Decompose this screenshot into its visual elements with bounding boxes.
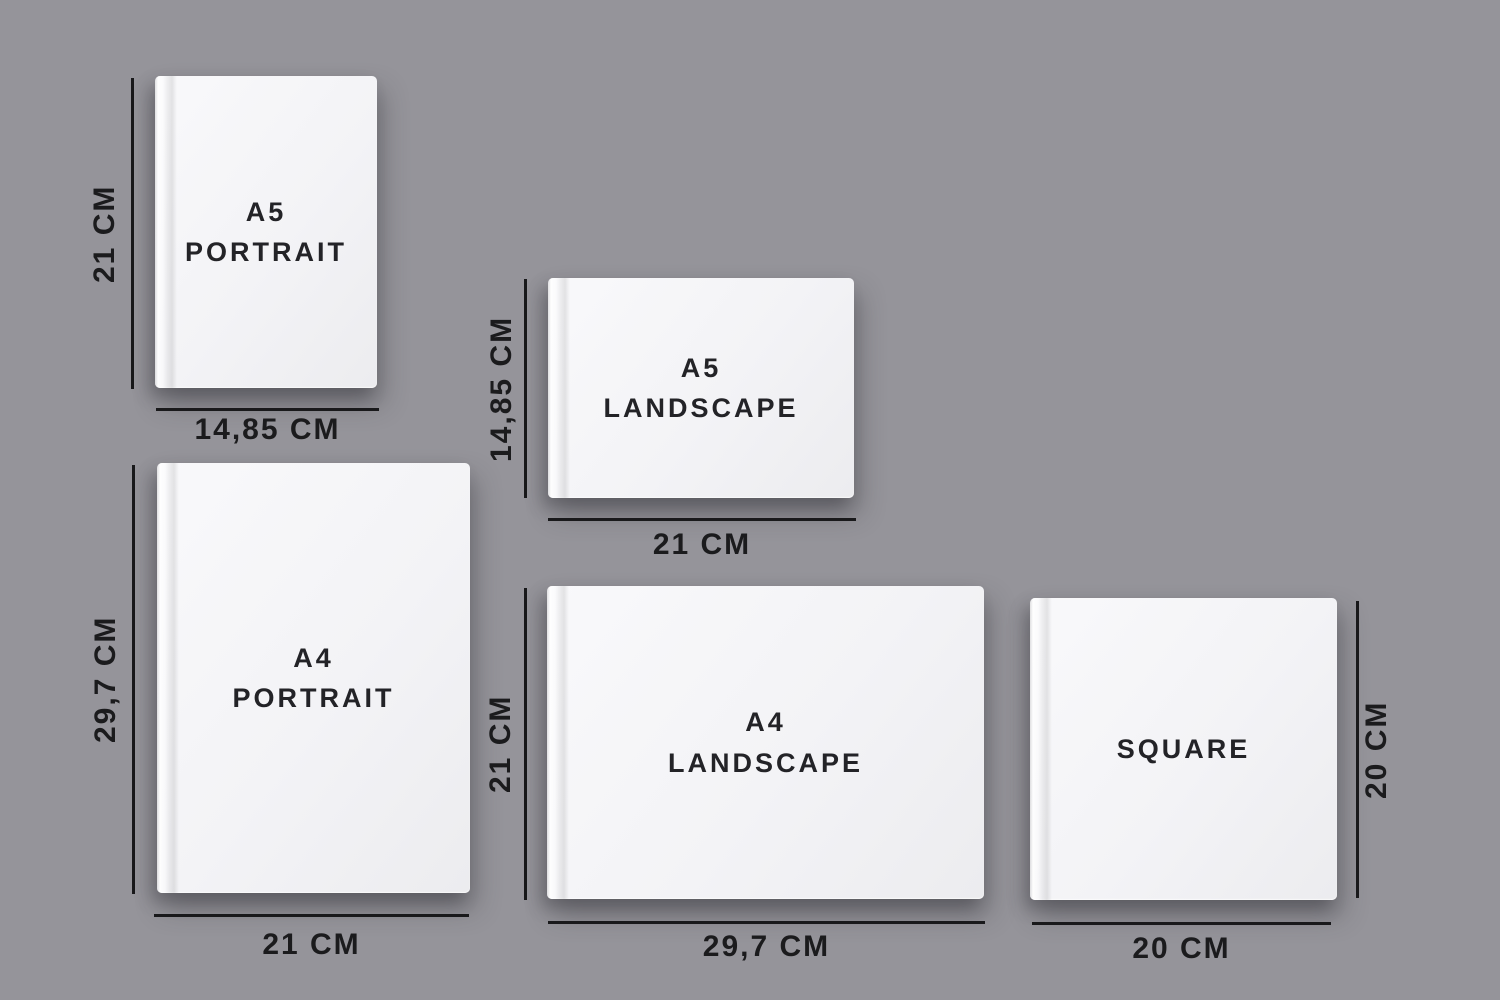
book-cover-a5-portrait: A5 PORTRAIT: [155, 76, 377, 388]
dimension-line-width-a5-portrait: [156, 408, 379, 411]
width-label-a5-portrait: 14,85 CM: [156, 413, 379, 447]
dimension-line-width-a4-landscape: [548, 921, 985, 924]
cover-title-line1: A4: [293, 638, 334, 679]
cover-title-a4-landscape: A4 LANDSCAPE: [547, 586, 984, 899]
cover-title-line1: SQUARE: [1117, 729, 1251, 770]
cover-title-line1: A4: [745, 702, 786, 743]
dimension-line-height-a4-portrait: [132, 465, 135, 894]
cover-title-line2: PORTRAIT: [185, 232, 347, 273]
size-comparison-diagram: 21 CM A5 PORTRAIT 14,85 CM 14,85 CM A5 L…: [0, 0, 1500, 1000]
book-cover-a4-portrait: A4 PORTRAIT: [157, 463, 470, 893]
dimension-line-height-a5-portrait: [131, 78, 134, 389]
width-label-a4-landscape: 29,7 CM: [548, 930, 985, 964]
height-label-a5-portrait: 21 CM: [88, 78, 128, 389]
book-cover-a5-landscape: A5 LANDSCAPE: [548, 278, 854, 498]
dimension-line-height-square: [1356, 601, 1359, 898]
cover-title-line2: LANDSCAPE: [603, 388, 798, 429]
cover-title-line2: PORTRAIT: [233, 678, 395, 719]
height-label-a4-landscape: 21 CM: [484, 588, 524, 900]
cover-title-a5-landscape: A5 LANDSCAPE: [548, 278, 854, 498]
width-label-a5-landscape: 21 CM: [548, 528, 856, 562]
cover-title-a4-portrait: A4 PORTRAIT: [157, 463, 470, 893]
width-label-square: 20 CM: [1032, 932, 1331, 966]
height-label-square: 20 CM: [1360, 601, 1400, 898]
dimension-line-width-a5-landscape: [548, 518, 856, 521]
cover-title-a5-portrait: A5 PORTRAIT: [155, 76, 377, 388]
height-label-a4-portrait: 29,7 CM: [89, 465, 129, 894]
dimension-line-width-a4-portrait: [154, 914, 469, 917]
dimension-line-height-a4-landscape: [524, 588, 527, 900]
cover-title-line1: A5: [681, 348, 722, 389]
book-cover-a4-landscape: A4 LANDSCAPE: [547, 586, 984, 899]
book-cover-square: SQUARE: [1030, 598, 1337, 900]
cover-title-line1: A5: [246, 192, 287, 233]
dimension-line-width-square: [1032, 922, 1331, 925]
height-label-a5-landscape: 14,85 CM: [485, 279, 525, 498]
cover-title-square: SQUARE: [1030, 598, 1337, 900]
cover-title-line2: LANDSCAPE: [668, 743, 863, 784]
width-label-a4-portrait: 21 CM: [154, 928, 469, 962]
